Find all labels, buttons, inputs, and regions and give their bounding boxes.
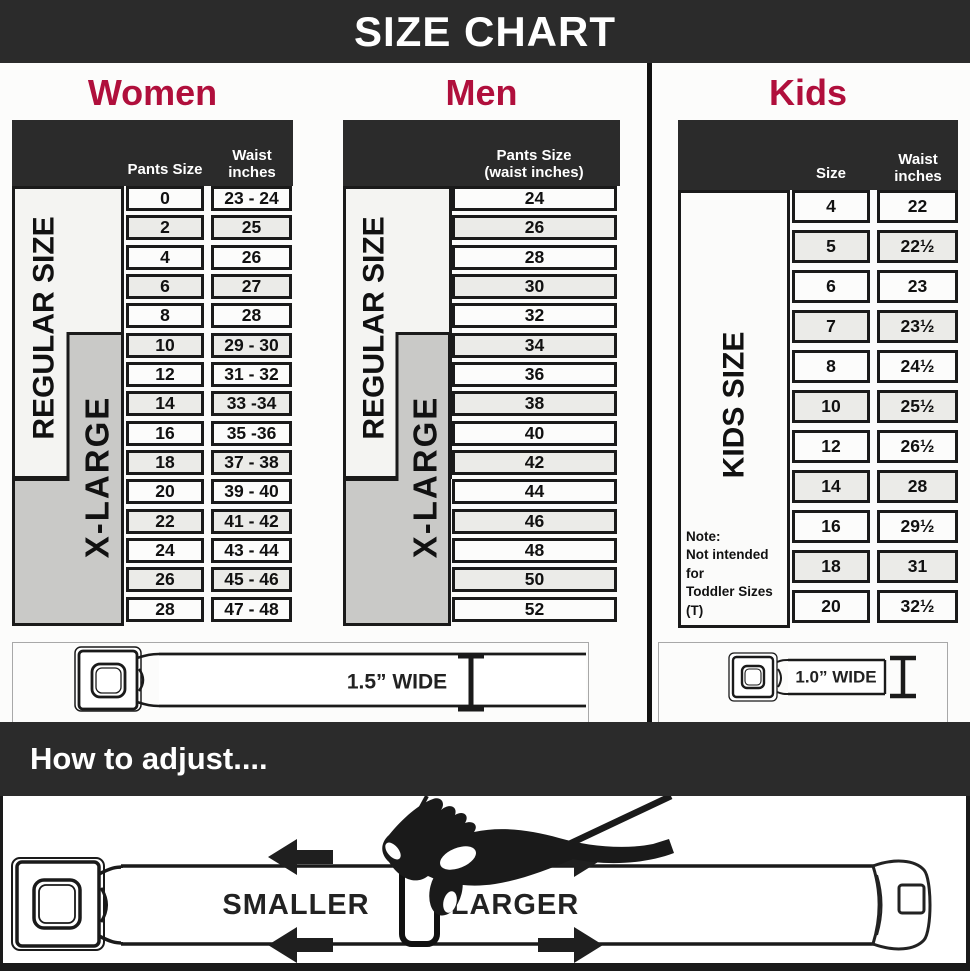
table-cell: 52: [452, 597, 617, 622]
table-row: 225: [126, 215, 292, 240]
table-row: 36: [452, 362, 617, 387]
table-row: 24: [452, 186, 617, 211]
table-cell: 5: [792, 230, 870, 263]
table-cell: 43 - 44: [211, 538, 292, 563]
table-cell: 4: [792, 190, 870, 223]
table-row: 2032½: [792, 590, 958, 623]
table-cell: 45 - 46: [211, 567, 292, 592]
table-row: 44: [452, 479, 617, 504]
table-cell: 35 -36: [211, 421, 292, 446]
kids-table-header: Size Waist inches: [678, 120, 958, 190]
table-row: 426: [126, 245, 292, 270]
seatbelt-buckle-icon: [12, 858, 123, 950]
kids-note-line: Toddler Sizes (T): [686, 583, 787, 620]
adjust-illustration-svg: SMALLER LARGER: [3, 796, 966, 963]
table-row: 1837 - 38: [126, 450, 292, 475]
table-cell: 23½: [877, 310, 958, 343]
table-row: 023 - 24: [126, 186, 292, 211]
kids-table-rows: 422522½623723½824½1025½1226½14281629½183…: [792, 190, 958, 630]
kids-note: Note: Not intended for Toddler Sizes (T): [686, 528, 787, 621]
table-row: 1231 - 32: [126, 362, 292, 387]
table-cell: 8: [792, 350, 870, 383]
table-row: 52: [452, 597, 617, 622]
women-table-rows: 023 - 242254266278281029 - 301231 - 3214…: [126, 186, 292, 626]
table-cell: 4: [126, 245, 204, 270]
men-pants-size-header: Pants Size (waist inches): [484, 147, 584, 181]
table-cell: 6: [126, 274, 204, 299]
table-cell: 12: [792, 430, 870, 463]
table-row: 48: [452, 538, 617, 563]
table-cell: 16: [792, 510, 870, 543]
women-size-bands: REGULAR SIZE X-LARGE: [12, 186, 124, 626]
table-row: 1433 -34: [126, 391, 292, 416]
table-cell: 6: [792, 270, 870, 303]
women-regular-size-label: REGULAR SIZE: [28, 216, 61, 439]
table-cell: 36: [452, 362, 617, 387]
table-cell: 23 - 24: [211, 186, 292, 211]
table-row: 2443 - 44: [126, 538, 292, 563]
table-cell: 37 - 38: [211, 450, 292, 475]
table-row: 824½: [792, 350, 958, 383]
men-table-rows: 242628303234363840424446485052: [452, 186, 617, 626]
women-table-body: REGULAR SIZE X-LARGE 023 - 2422542662782…: [12, 186, 293, 626]
page-title: SIZE CHART: [0, 0, 970, 63]
table-cell: 44: [452, 479, 617, 504]
adjust-illustration-panel: SMALLER LARGER: [0, 796, 970, 971]
table-cell: 2: [126, 215, 204, 240]
table-cell: 47 - 48: [211, 597, 292, 622]
kids-size-header: Size: [792, 165, 870, 182]
kids-size-label: KIDS SIZE: [718, 332, 751, 479]
table-row: 50: [452, 567, 617, 592]
table-cell: 42: [452, 450, 617, 475]
men-xlarge-label: X-LARGE: [407, 396, 444, 559]
men-section-title: Men: [343, 72, 620, 114]
table-cell: 28: [126, 597, 204, 622]
table-row: 28: [452, 245, 617, 270]
table-row: 34: [452, 333, 617, 358]
size-chart-page: SIZE CHART Women Men Kids Pants Size Wai…: [0, 0, 970, 971]
table-cell: 22½: [877, 230, 958, 263]
kids-waist-header: Waist inches: [889, 151, 947, 185]
table-cell: 22: [126, 509, 204, 534]
table-cell: 0: [126, 186, 204, 211]
men-size-bands: REGULAR SIZE X-LARGE: [343, 186, 452, 626]
belt-tip: [873, 861, 930, 949]
table-cell: 22: [877, 190, 958, 223]
table-cell: 31 - 32: [211, 362, 292, 387]
table-cell: 7: [792, 310, 870, 343]
vertical-divider: [647, 63, 652, 722]
table-cell: 32½: [877, 590, 958, 623]
table-row: 26: [452, 215, 617, 240]
table-row: 40: [452, 421, 617, 446]
table-cell: 38: [452, 391, 617, 416]
table-cell: 20: [126, 479, 204, 504]
women-section-title: Women: [12, 72, 293, 114]
table-cell: 23: [877, 270, 958, 303]
table-cell: 28: [452, 245, 617, 270]
kids-table-body: KIDS SIZE Note: Not intended for Toddler…: [678, 190, 958, 630]
table-cell: 24: [452, 186, 617, 211]
table-cell: 50: [452, 567, 617, 592]
table-row: 627: [126, 274, 292, 299]
table-cell: 26: [211, 245, 292, 270]
table-cell: 14: [792, 470, 870, 503]
table-row: 1029 - 30: [126, 333, 292, 358]
table-row: 42: [452, 450, 617, 475]
table-row: 2645 - 46: [126, 567, 292, 592]
men-table-body: REGULAR SIZE X-LARGE 2426283032343638404…: [343, 186, 620, 626]
table-row: 46: [452, 509, 617, 534]
table-row: 1428: [792, 470, 958, 503]
table-row: 38: [452, 391, 617, 416]
table-row: 30: [452, 274, 617, 299]
women-table-header: Pants Size Waist inches: [12, 120, 293, 186]
table-row: 723½: [792, 310, 958, 343]
table-row: 2241 - 42: [126, 509, 292, 534]
kids-section-title: Kids: [658, 72, 958, 114]
kids-belt-svg: 1.0” WIDE: [659, 643, 945, 721]
kids-note-line: Not intended for: [686, 546, 787, 583]
adult-belt-svg: 1.5” WIDE: [13, 643, 586, 721]
men-regular-size-label: REGULAR SIZE: [358, 216, 391, 439]
table-cell: 27: [211, 274, 292, 299]
women-xlarge-label: X-LARGE: [79, 396, 116, 559]
table-cell: 28: [211, 303, 292, 328]
table-row: 522½: [792, 230, 958, 263]
table-cell: 31: [877, 550, 958, 583]
table-cell: 24½: [877, 350, 958, 383]
table-row: 32: [452, 303, 617, 328]
table-row: 1226½: [792, 430, 958, 463]
table-row: 2039 - 40: [126, 479, 292, 504]
table-cell: 25: [211, 215, 292, 240]
table-cell: 10: [126, 333, 204, 358]
table-cell: 46: [452, 509, 617, 534]
table-cell: 48: [452, 538, 617, 563]
width-gauge-icon: [890, 658, 916, 696]
table-row: 2847 - 48: [126, 597, 292, 622]
table-row: 1629½: [792, 510, 958, 543]
table-cell: 24: [126, 538, 204, 563]
table-cell: 29½: [877, 510, 958, 543]
table-cell: 29 - 30: [211, 333, 292, 358]
table-cell: 30: [452, 274, 617, 299]
kids-note-line: Note:: [686, 528, 787, 547]
table-cell: 18: [126, 450, 204, 475]
larger-label: LARGER: [451, 889, 579, 921]
table-cell: 26: [452, 215, 617, 240]
table-row: 1635 -36: [126, 421, 292, 446]
table-cell: 40: [452, 421, 617, 446]
adult-belt-illustration: 1.5” WIDE: [12, 642, 589, 724]
kids-belt-width-label: 1.0” WIDE: [795, 668, 876, 687]
adult-belt-width-label: 1.5” WIDE: [347, 671, 447, 694]
smaller-label: SMALLER: [222, 889, 369, 921]
table-cell: 26: [126, 567, 204, 592]
table-cell: 8: [126, 303, 204, 328]
kids-size-band: KIDS SIZE Note: Not intended for Toddler…: [678, 190, 790, 628]
table-cell: 20: [792, 590, 870, 623]
table-cell: 41 - 42: [211, 509, 292, 534]
table-cell: 10: [792, 390, 870, 423]
table-cell: 26½: [877, 430, 958, 463]
table-cell: 39 - 40: [211, 479, 292, 504]
table-row: 1831: [792, 550, 958, 583]
seatbelt-buckle-icon: [729, 653, 788, 701]
women-pants-size-header: Pants Size: [126, 161, 204, 178]
women-waist-header: Waist inches: [223, 147, 281, 181]
table-row: 422: [792, 190, 958, 223]
table-row: 1025½: [792, 390, 958, 423]
table-cell: 33 -34: [211, 391, 292, 416]
table-cell: 34: [452, 333, 617, 358]
table-cell: 28: [877, 470, 958, 503]
adjust-banner-title: How to adjust....: [0, 722, 970, 796]
belt-tip-hole: [899, 885, 924, 913]
table-cell: 16: [126, 421, 204, 446]
men-table-header: Pants Size (waist inches): [343, 120, 620, 186]
table-cell: 25½: [877, 390, 958, 423]
table-cell: 18: [792, 550, 870, 583]
table-row: 828: [126, 303, 292, 328]
seatbelt-buckle-icon: [75, 647, 159, 711]
table-cell: 14: [126, 391, 204, 416]
table-row: 623: [792, 270, 958, 303]
table-cell: 12: [126, 362, 204, 387]
kids-belt-illustration: 1.0” WIDE: [658, 642, 948, 724]
table-cell: 32: [452, 303, 617, 328]
